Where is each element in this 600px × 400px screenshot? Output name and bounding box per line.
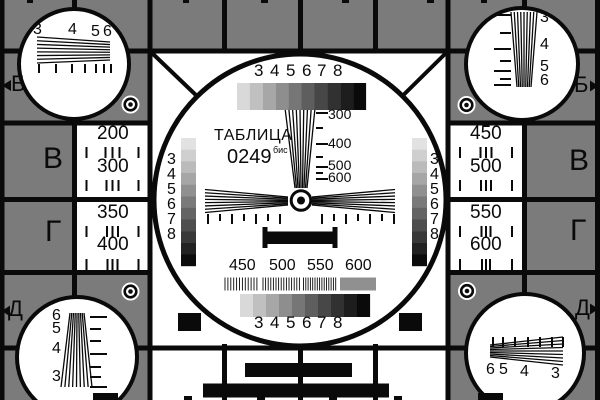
grayscale-bottom-label: 4 [270,314,279,331]
resolution-number: 300 [97,157,129,176]
corner-wedge-label: 3 [540,10,549,26]
corner-wedge-label: 6 [486,362,495,378]
edge-marker-left-b: Б [11,73,25,95]
burst-label: 450 [229,258,256,274]
corner-wedge-label: 4 [68,22,77,38]
grayscale-bottom-label: 7 [317,314,326,331]
grayscale-right-label: 8 [430,227,439,243]
grayscale-top-label: 7 [317,62,326,79]
edge-marker-right-b: Б [574,74,588,96]
grayscale-top-label: 4 [270,62,279,79]
grayscale-left-label: 8 [167,227,176,243]
grayscale-top-label: 6 [302,62,311,79]
bottom-bar-long [203,384,389,398]
resolution-number: 400 [97,235,129,254]
grayscale-top-label: 3 [254,62,263,79]
bottom-bar-short [245,363,352,377]
resolution-number: 550 [470,203,502,222]
center-scale-label: 400 [328,136,351,150]
corner-wedge-label: 3 [551,366,560,382]
corner-wedge-label: 5 [499,362,508,378]
corner-wedge-label: 6 [103,24,112,40]
corner-wedge-label: 5 [91,24,100,40]
resolution-number: 200 [97,124,129,143]
corner-wedge-label: 6 [540,73,549,89]
test-card-graphics [0,0,600,400]
burst-label: 550 [307,258,334,274]
edge-marker-left-g: Г [45,217,61,247]
ibeam-bar [266,232,334,245]
corner-wedge-label: 5 [52,321,61,337]
burst-label: 500 [269,258,296,274]
corner-wedge-label: 3 [33,22,42,38]
resolution-number: 450 [470,124,502,143]
edge-marker-right-g: Г [570,216,586,246]
edge-marker-left-v: В [43,144,63,174]
center-scale-label: 600 [328,170,351,184]
tv-test-card: Б В Г Д Б В Г Д ТАБЛИЦА 0249 бис 3 4 5 6… [0,0,600,400]
grayscale-top-label: 8 [333,62,342,79]
edge-marker-left-d: Д [8,298,23,320]
card-number: 0249 [227,147,272,167]
center-scale-label: 300 [328,107,351,121]
grayscale-top-label: 5 [286,62,295,79]
card-title: ТАБЛИЦА [214,128,292,144]
corner-wedge-label: 4 [52,341,61,357]
resolution-number: 500 [470,157,502,176]
grayscale-bottom-label: 8 [333,314,342,331]
grayscale-bottom-label: 5 [286,314,295,331]
resolution-number: 350 [97,203,129,222]
corner-wedge-label: 4 [520,364,529,380]
resolution-number: 600 [470,235,502,254]
corner-wedge-label: 3 [52,369,61,385]
black-square-right [399,313,422,331]
grayscale-bottom-label: 3 [254,314,263,331]
black-square-left [178,313,201,331]
card-number-suffix: бис [273,146,288,155]
edge-marker-right-v: В [569,146,589,176]
burst-label: 600 [345,258,372,274]
corner-wedge-label: 4 [540,37,549,53]
edge-marker-right-d: Д [575,297,590,319]
grayscale-bottom-label: 6 [302,314,311,331]
